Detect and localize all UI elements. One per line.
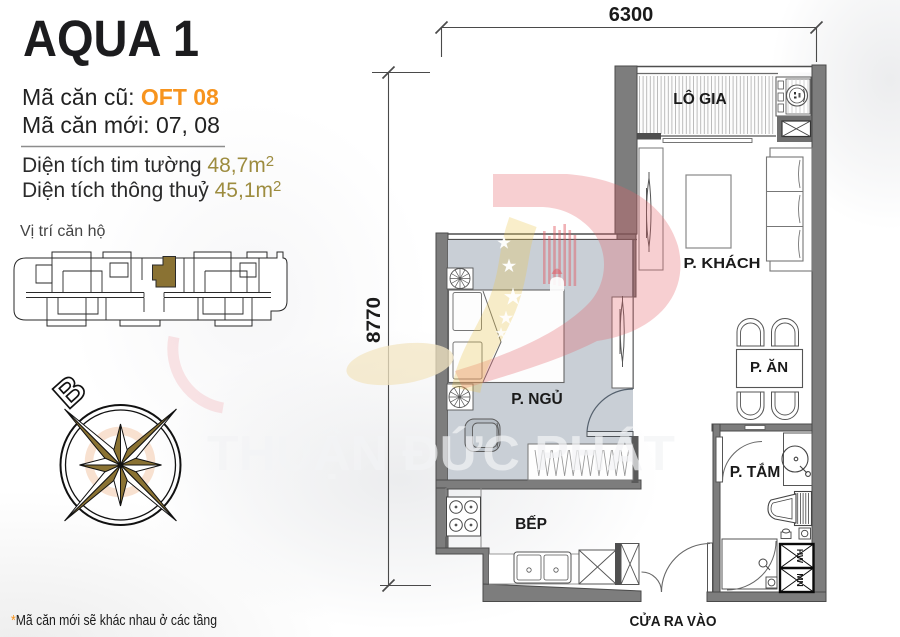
svg-text:THUẬN ĐỨC PHÁT: THUẬN ĐỨC PHÁT	[207, 426, 675, 481]
svg-text:Diện tích tim tường 48,7m2: Diện tích tim tường 48,7m2	[22, 153, 274, 177]
svg-text:P. TẮM: P. TẮM	[730, 463, 781, 481]
svg-text:CỬA RA VÀO: CỬA RA VÀO	[630, 612, 717, 630]
svg-text:Mã căn cũ: OFT 08: Mã căn cũ: OFT 08	[22, 84, 219, 110]
svg-text:Diện tích thông thuỷ 45,1m2: Diện tích thông thuỷ 45,1m2	[22, 178, 281, 202]
svg-text:P. KHÁCH: P. KHÁCH	[684, 255, 761, 272]
svg-text:P. NGỦ: P. NGỦ	[511, 390, 562, 408]
svg-text:*Mã căn mới sẽ khác nhau ở các: *Mã căn mới sẽ khác nhau ở các tầng	[11, 613, 217, 629]
svg-text:LÔ GIA: LÔ GIA	[673, 90, 726, 108]
svg-text:Vị trí căn hộ: Vị trí căn hộ	[20, 223, 105, 240]
svg-text:P. ĂN: P. ĂN	[750, 359, 788, 376]
svg-text:6300: 6300	[609, 4, 654, 26]
svg-text:AQUA 1: AQUA 1	[23, 10, 199, 67]
svg-text:MN: MN	[795, 573, 805, 586]
svg-text:8770: 8770	[364, 297, 385, 343]
svg-text:Mã căn mới: 07, 08: Mã căn mới: 07, 08	[22, 112, 220, 138]
svg-text:HW: HW	[795, 549, 805, 564]
svg-text:BẾP: BẾP	[515, 516, 547, 533]
